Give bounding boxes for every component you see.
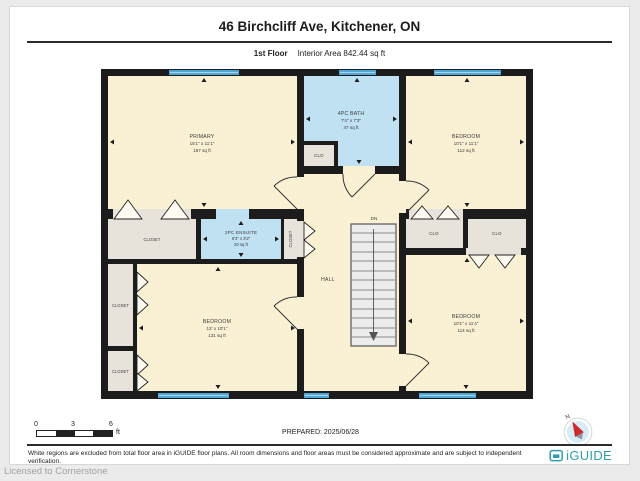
label-bath-dims: 7'4" x 7'3" <box>341 118 361 123</box>
label-bedroom-bl-name: BEDROOM <box>203 319 231 325</box>
footer-divider <box>27 444 612 446</box>
label-primary-dims: 15'1" x 11'1" <box>190 141 215 146</box>
scale-tick-3: 3 <box>71 421 75 428</box>
plan-footer-row: 0 3 6 ft PREPARED: 2025/06/28 N <box>10 415 631 445</box>
label-bedroom-br-area: 114 sq ft <box>457 328 475 333</box>
label-dn: DN <box>371 216 378 221</box>
label-bedroom-tr-name: BEDROOM <box>452 134 480 140</box>
header-divider <box>27 41 612 43</box>
iguide-logo-text: iGUIDE <box>566 448 612 463</box>
label-primary-area: 167 sq ft <box>193 148 211 153</box>
label-bedroom-tr-dims: 10'1" x 11'1" <box>454 141 479 146</box>
label-bedroom-tr-area: 112 sq ft <box>457 148 475 153</box>
label-ensuite-dims: 6'3" x 3'2" <box>232 236 251 241</box>
iguide-logo-icon <box>549 449 564 462</box>
label-closet-bl-1: CLOSET <box>112 303 129 308</box>
scale-tick-6: 6 <box>109 421 113 428</box>
label-closet-vertical: CLOSET <box>288 230 293 247</box>
label-hall: HALL <box>321 277 335 283</box>
label-primary-name: PRIMARY <box>190 134 215 140</box>
label-bedroom-bl-area: 131 sq ft <box>208 333 226 338</box>
iguide-logo: iGUIDE <box>549 447 612 463</box>
label-bedroom-br-name: BEDROOM <box>452 314 480 320</box>
floor-label: 1st Floor <box>254 49 288 58</box>
label-closet-bl-2: CLOSET <box>112 369 129 374</box>
scale-tick-0: 0 <box>34 421 38 428</box>
floor-plan-svg: PRIMARY 15'1" x 11'1" 167 sq ft 4PC BATH… <box>101 69 533 399</box>
prepared-date: PREPARED: 2025/06/28 <box>10 429 631 436</box>
label-bath-name: 4PC BATH <box>338 111 365 117</box>
label-bath-area: 47 sq ft <box>343 125 359 130</box>
label-clo-right-2: CLO <box>492 231 502 236</box>
label-closet-band: CLOSET <box>144 237 161 242</box>
floorplan-card: 46 Birchcliff Ave, Kitchener, ON 1st Flo… <box>9 6 630 465</box>
label-ensuite-area: 20 sq ft <box>234 242 249 247</box>
label-clo-bath: CLO <box>314 153 324 158</box>
floor-subtitle: 1st FloorInterior Area 842.44 sq ft <box>10 49 629 58</box>
label-ensuite-name: 2PC ENSUITE <box>225 230 257 235</box>
stairs <box>351 224 396 346</box>
floor-plan: PRIMARY 15'1" x 11'1" 167 sq ft 4PC BATH… <box>101 69 533 399</box>
label-clo-right-1: CLO <box>429 231 439 236</box>
label-bedroom-br-dims: 10'1" x 11'4" <box>454 321 479 326</box>
label-bedroom-bl-dims: 13' x 10'1" <box>206 326 227 331</box>
disclaimer-text: White regions are excluded from total fl… <box>28 450 538 466</box>
license-watermark: Licensed to Cornerstone <box>4 466 108 477</box>
interior-area-label: Interior Area 842.44 sq ft <box>298 49 386 58</box>
page-title: 46 Birchcliff Ave, Kitchener, ON <box>10 19 629 34</box>
